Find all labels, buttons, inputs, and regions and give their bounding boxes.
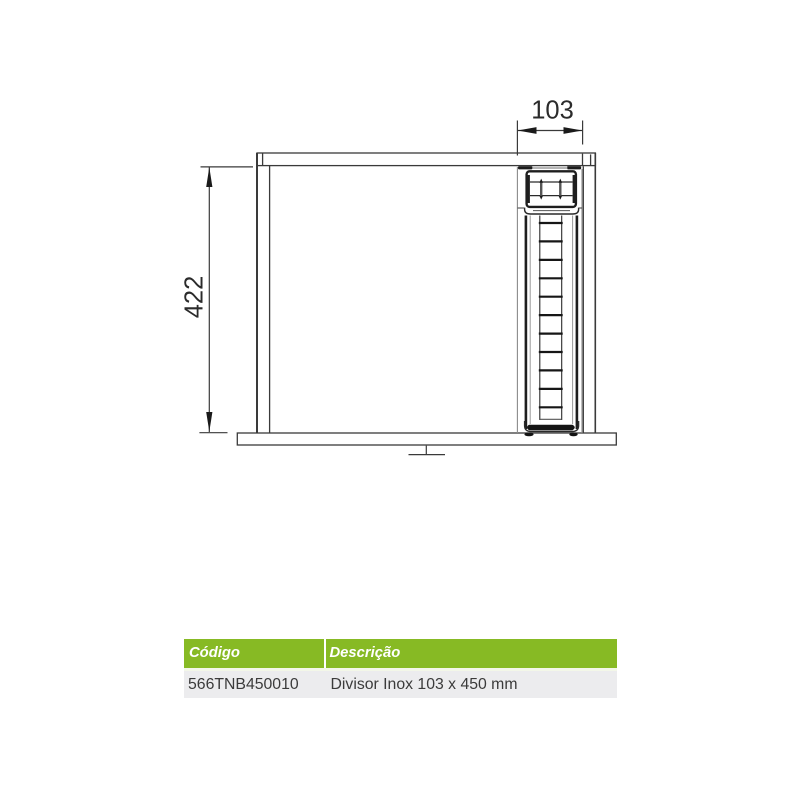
svg-text:103: 103: [531, 97, 574, 125]
svg-text:422: 422: [181, 276, 209, 319]
